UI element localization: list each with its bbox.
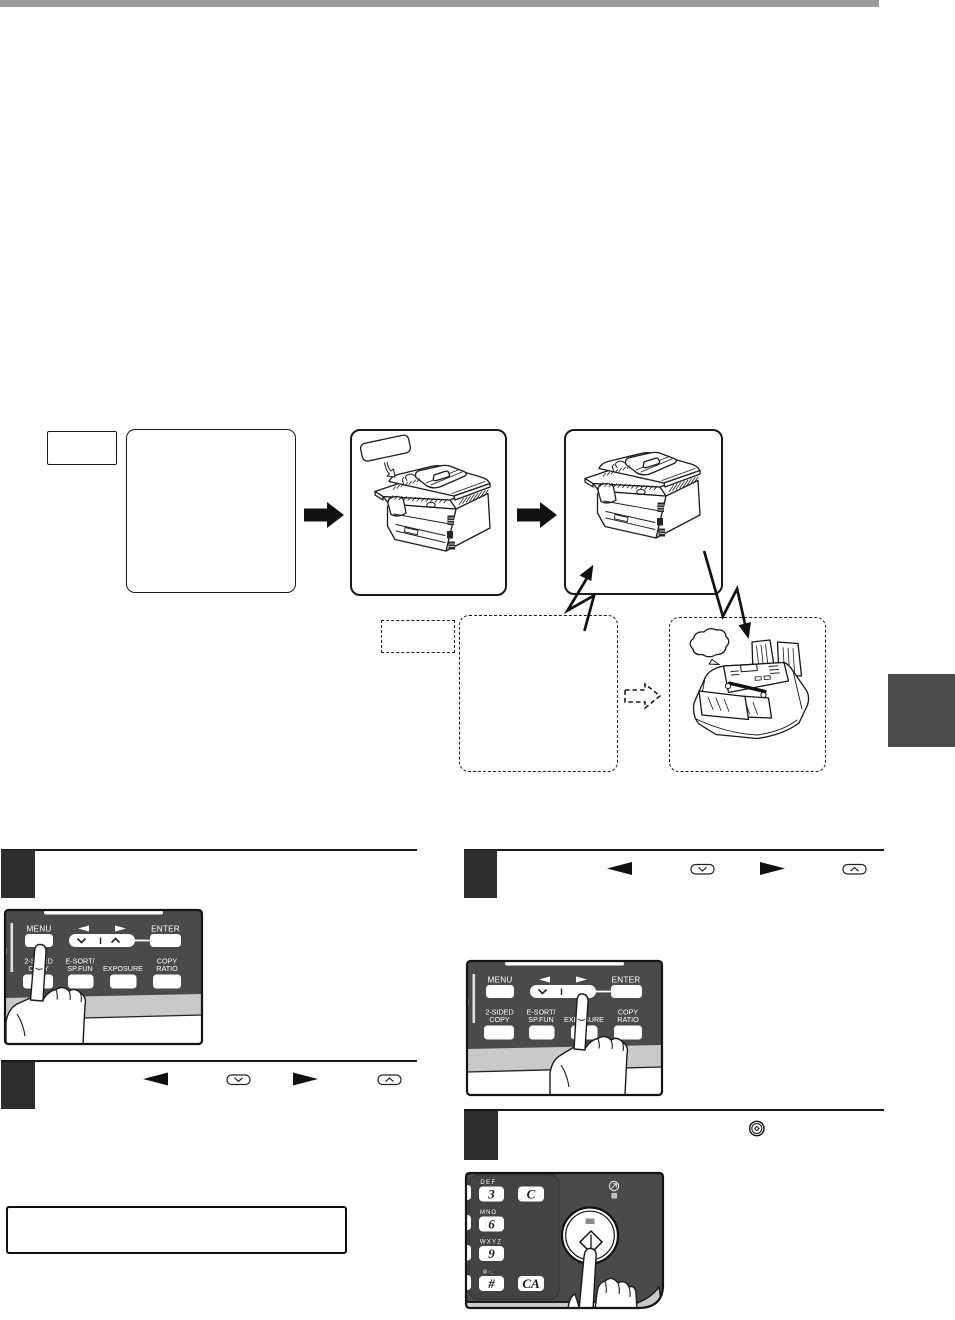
svg-text:DEF: DEF [480, 1180, 496, 1186]
svg-text:SP.FUN: SP.FUN [528, 1015, 553, 1024]
svg-text:MENU: MENU [488, 976, 513, 985]
svg-text:C: C [527, 1187, 536, 1202]
svg-text:ENTER: ENTER [612, 976, 641, 985]
svg-text:ENTER: ENTER [151, 925, 180, 934]
svg-text:SP.FUN: SP.FUN [67, 964, 92, 973]
svg-text:9: 9 [488, 1246, 495, 1261]
svg-text:COPY: COPY [489, 1015, 510, 1024]
svg-text:MENU: MENU [27, 925, 52, 934]
svg-text:WXYZ: WXYZ [480, 1240, 502, 1246]
svg-text:@.-_: @.-_ [483, 1269, 494, 1274]
svg-text:RATIO: RATIO [156, 964, 178, 973]
svg-text:6: 6 [488, 1217, 495, 1232]
svg-text:RATIO: RATIO [617, 1015, 639, 1024]
svg-text:MNO: MNO [480, 1210, 497, 1216]
svg-text:CA: CA [522, 1276, 540, 1291]
svg-text:EXPOSURE: EXPOSURE [103, 964, 143, 973]
svg-text:#: # [487, 1276, 495, 1291]
svg-text:3: 3 [487, 1187, 495, 1202]
